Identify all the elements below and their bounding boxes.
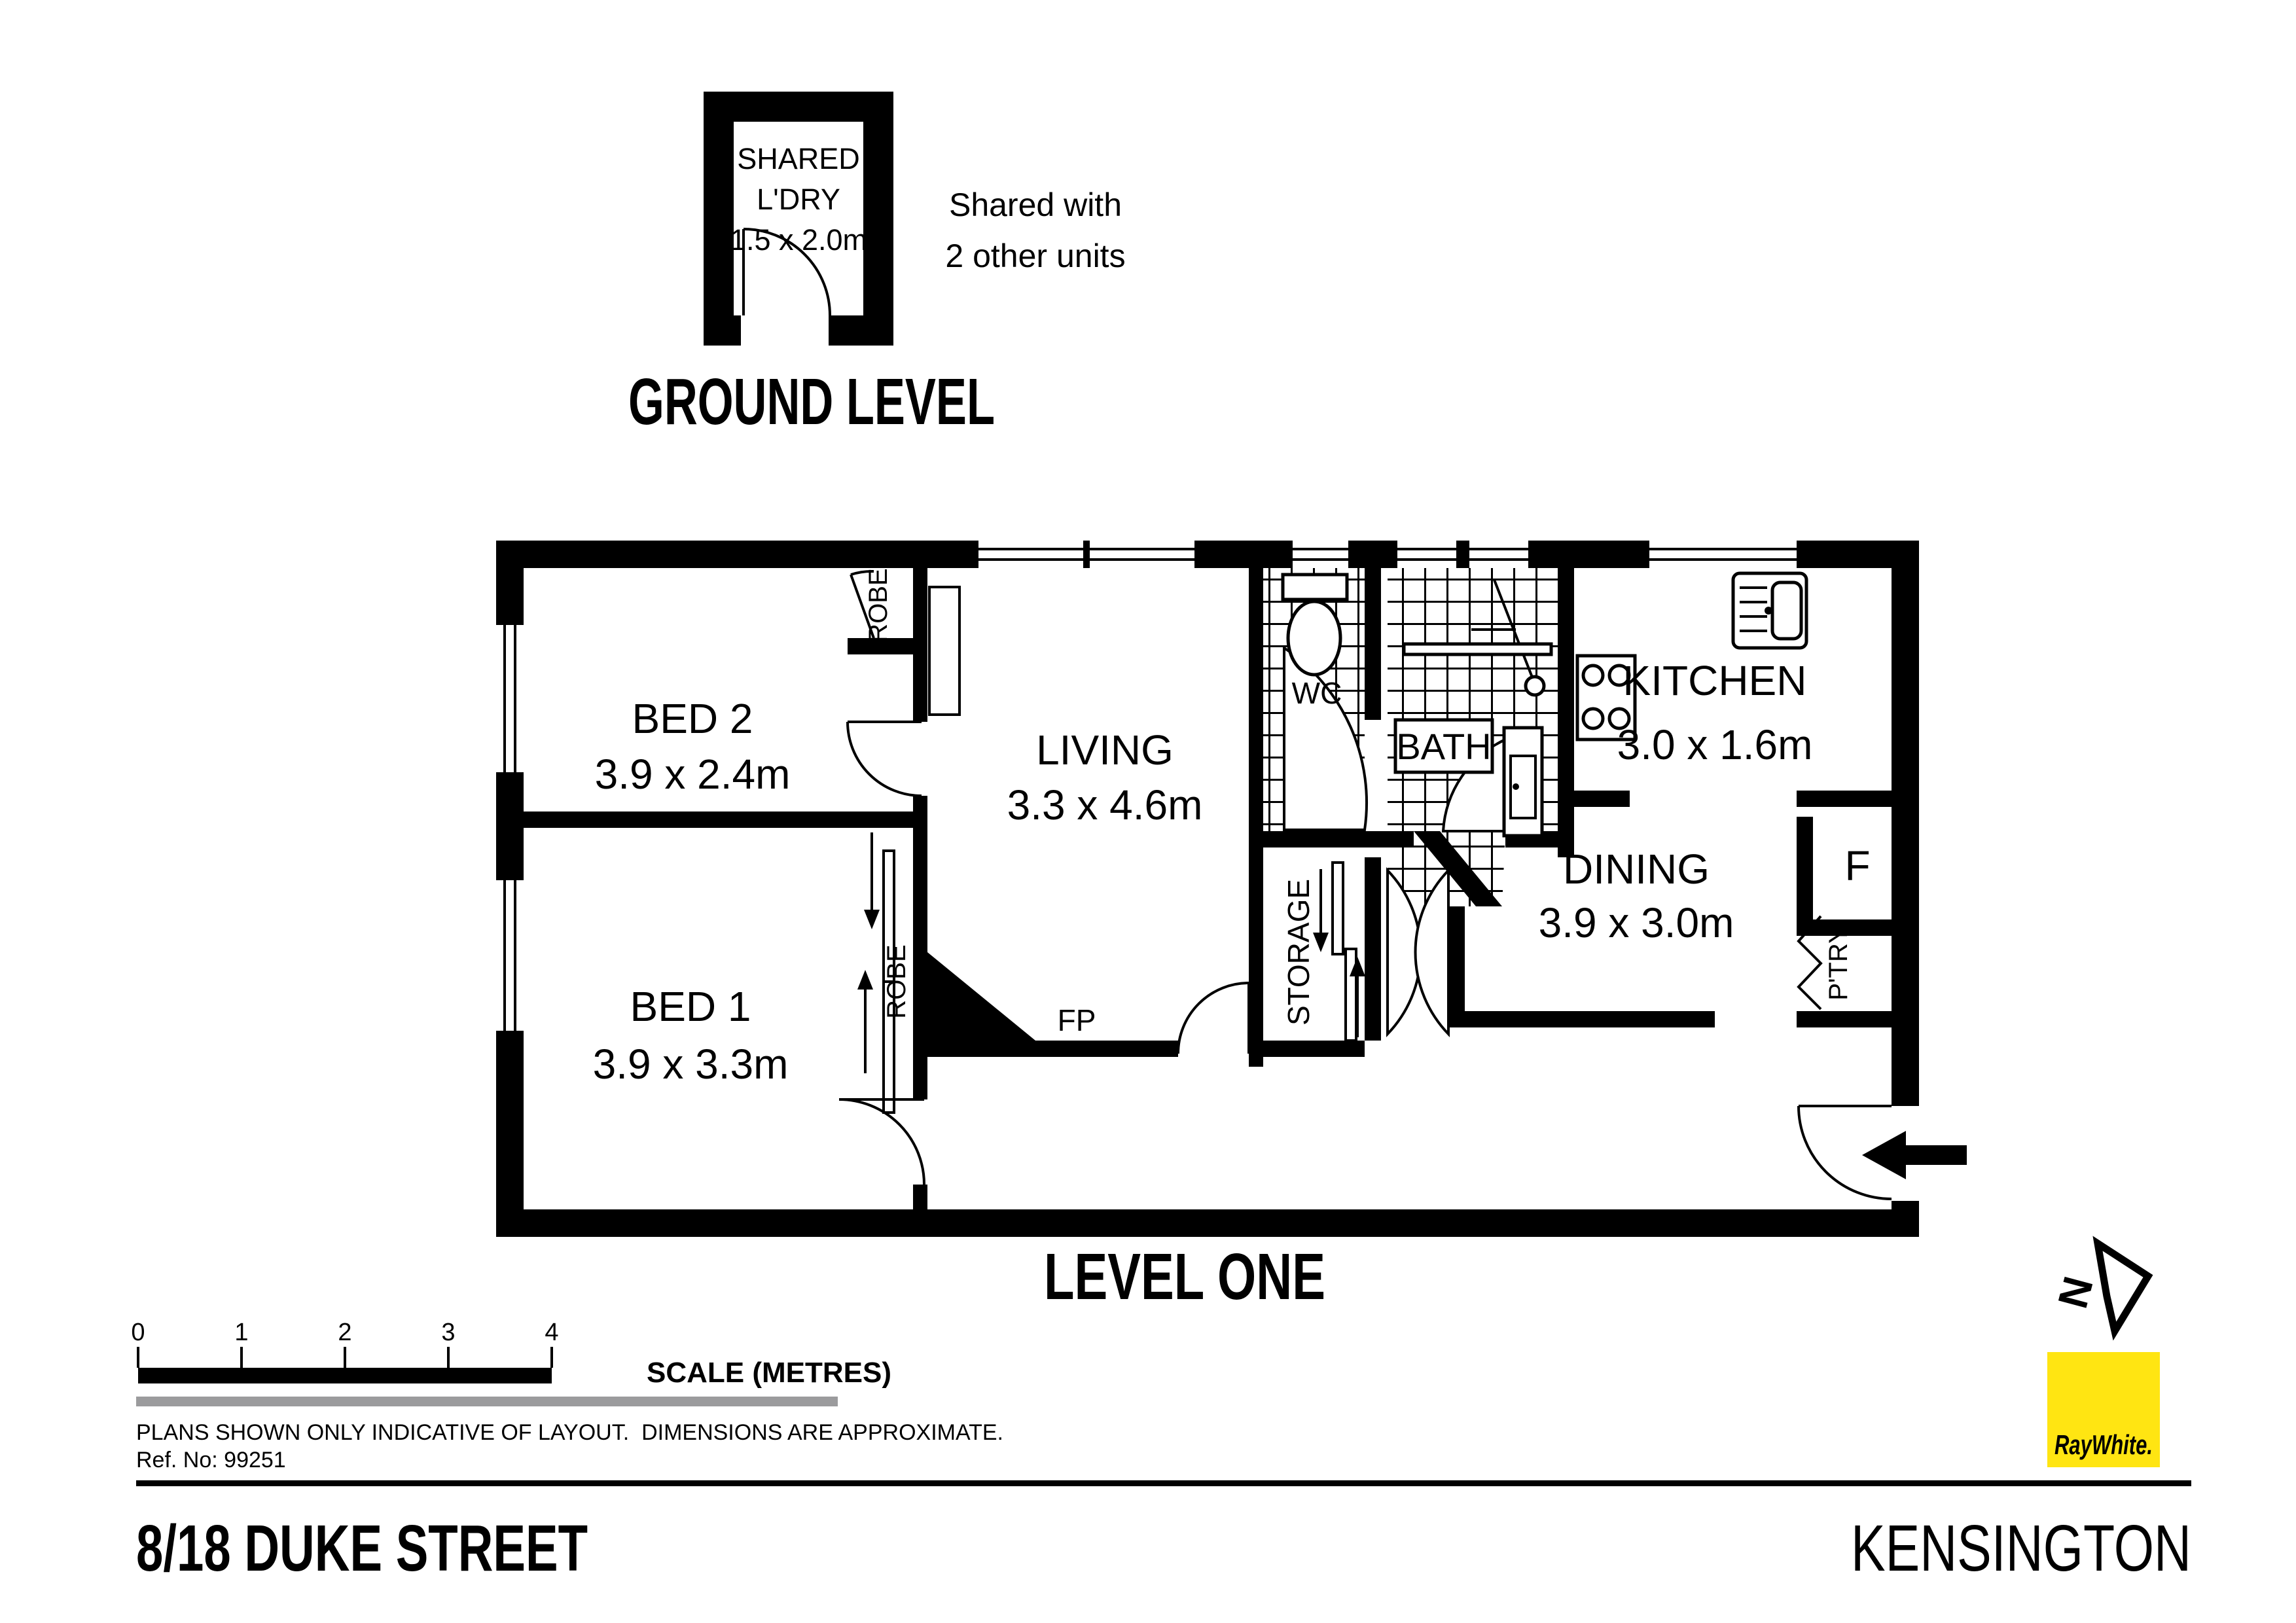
reference-number: Ref. No: 99251	[136, 1448, 286, 1472]
bed1-dims: 3.9 x 3.3m	[593, 1041, 789, 1088]
laundry-dims: 1.5 x 2.0m	[730, 223, 867, 257]
laundry-label-1: SHARED	[737, 142, 860, 175]
robe-cabinet	[929, 587, 960, 715]
sink-icon	[1733, 573, 1806, 648]
north-label: N	[2049, 1272, 2102, 1313]
bed1-name: BED 1	[630, 983, 751, 1030]
fp-label: FP	[1058, 1003, 1096, 1037]
level-one-title: LEVEL ONE	[1044, 1240, 1325, 1313]
footer-rule	[136, 1480, 2191, 1486]
shared-note-line2: 2 other units	[945, 238, 1125, 274]
disclaimer-text: PLANS SHOWN ONLY INDICATIVE OF LAYOUT. D…	[136, 1420, 1003, 1445]
storage-label: STORAGE	[1282, 879, 1316, 1026]
street-address: 8/18 DUKE STREET	[136, 1512, 588, 1585]
bath-label: BATH	[1396, 726, 1491, 767]
laundry-label-2: L'DRY	[757, 183, 840, 216]
bath-shelf	[1404, 644, 1551, 654]
scale-tick-1: 1	[234, 1319, 248, 1346]
ground-level-plan: SHARED L'DRY 1.5 x 2.0m Shared with 2 ot…	[628, 92, 1126, 438]
living-name: LIVING	[1036, 726, 1174, 774]
fireplace-icon	[927, 952, 1035, 1041]
floor-plan-svg: SHARED L'DRY 1.5 x 2.0m Shared with 2 ot…	[0, 0, 2296, 1623]
floorplan-page: SHARED L'DRY 1.5 x 2.0m Shared with 2 ot…	[0, 0, 2296, 1623]
laundry-walls	[704, 92, 893, 346]
scale-bar-label: SCALE (METRES)	[647, 1357, 891, 1389]
scale-tick-3: 3	[441, 1319, 455, 1346]
bed1-door	[839, 1099, 924, 1185]
storage-sliding	[1313, 863, 1365, 1041]
scale-bar: 0 1 2 3 4 SCALE (METRES)	[131, 1319, 891, 1406]
room-labels: BED 2 3.9 x 2.4m BED 1 3.9 x 3.3m LIVING…	[593, 568, 1871, 1088]
pantry-label: P'TRY	[1824, 926, 1853, 1001]
gray-divider-bar	[136, 1397, 838, 1406]
kitchen-window	[1649, 541, 1797, 568]
footer: 8/18 DUKE STREET KENSINGTON	[136, 1480, 2191, 1585]
living-dims: 3.3 x 4.6m	[1007, 781, 1203, 829]
wc-label: WC	[1292, 676, 1342, 710]
robe-bed1-label: ROBE	[882, 944, 911, 1018]
raywhite-wordmark: RayWhite.	[2054, 1429, 2153, 1460]
bed2-dims: 3.9 x 2.4m	[595, 751, 791, 798]
bath-label-box: BATH	[1395, 720, 1492, 772]
level-one-plan: BED 2 3.9 x 2.4m BED 1 3.9 x 3.3m LIVING…	[496, 541, 1967, 1313]
scale-tick-2: 2	[338, 1319, 351, 1346]
wc-window	[1293, 541, 1348, 568]
fridge-label: F	[1844, 842, 1870, 889]
robe-top-label: ROBE	[864, 568, 893, 642]
suburb: KENSINGTON	[1851, 1512, 2191, 1585]
bed1-window	[496, 880, 524, 1031]
bed2-door	[848, 722, 922, 796]
ground-level-title: GROUND LEVEL	[628, 365, 995, 438]
living-door	[1178, 983, 1249, 1054]
raywhite-logo: RayWhite.	[2047, 1352, 2160, 1467]
scale-tick-0: 0	[131, 1319, 145, 1346]
scale-tick-4: 4	[545, 1319, 558, 1346]
bed2-window	[496, 625, 524, 772]
disclaimer-notes: PLANS SHOWN ONLY INDICATIVE OF LAYOUT. D…	[136, 1420, 1003, 1472]
vanity-icon	[1504, 728, 1542, 836]
north-arrow: N	[2049, 1243, 2148, 1331]
shared-note-line1: Shared with	[949, 187, 1122, 223]
bed2-name: BED 2	[632, 695, 753, 742]
kitchen-dims: 3.0 x 1.6m	[1617, 721, 1813, 768]
kitchen-name: KITCHEN	[1623, 657, 1807, 704]
dining-dims: 3.9 x 3.0m	[1539, 899, 1734, 946]
dining-name: DINING	[1563, 846, 1710, 893]
